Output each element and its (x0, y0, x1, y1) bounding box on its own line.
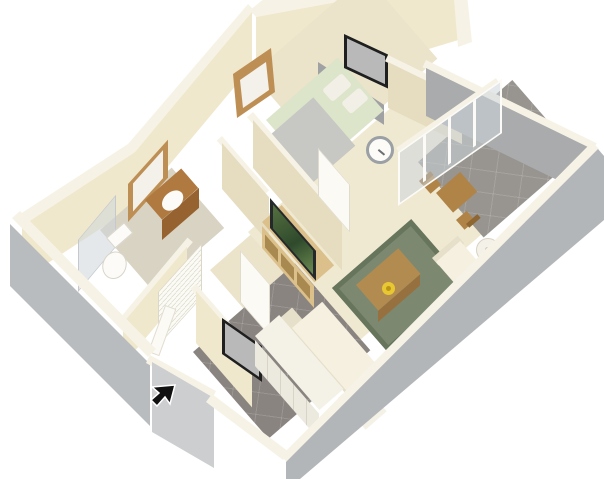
slider-mullion (473, 99, 476, 147)
floor-lamp (476, 238, 500, 262)
floor-lamp-finial (485, 247, 490, 252)
slider-mullion (423, 134, 426, 182)
flower-center (386, 286, 391, 291)
flower-centerpiece (382, 282, 395, 295)
floor-plan-scene (0, 0, 604, 479)
bedroom-right-wall-top (452, 0, 472, 47)
wall-clock (366, 136, 394, 164)
entry-recess-wall-face (152, 362, 214, 468)
clock-hand (378, 149, 385, 156)
slider-mullion (448, 117, 451, 165)
mouse-cursor (151, 385, 175, 406)
